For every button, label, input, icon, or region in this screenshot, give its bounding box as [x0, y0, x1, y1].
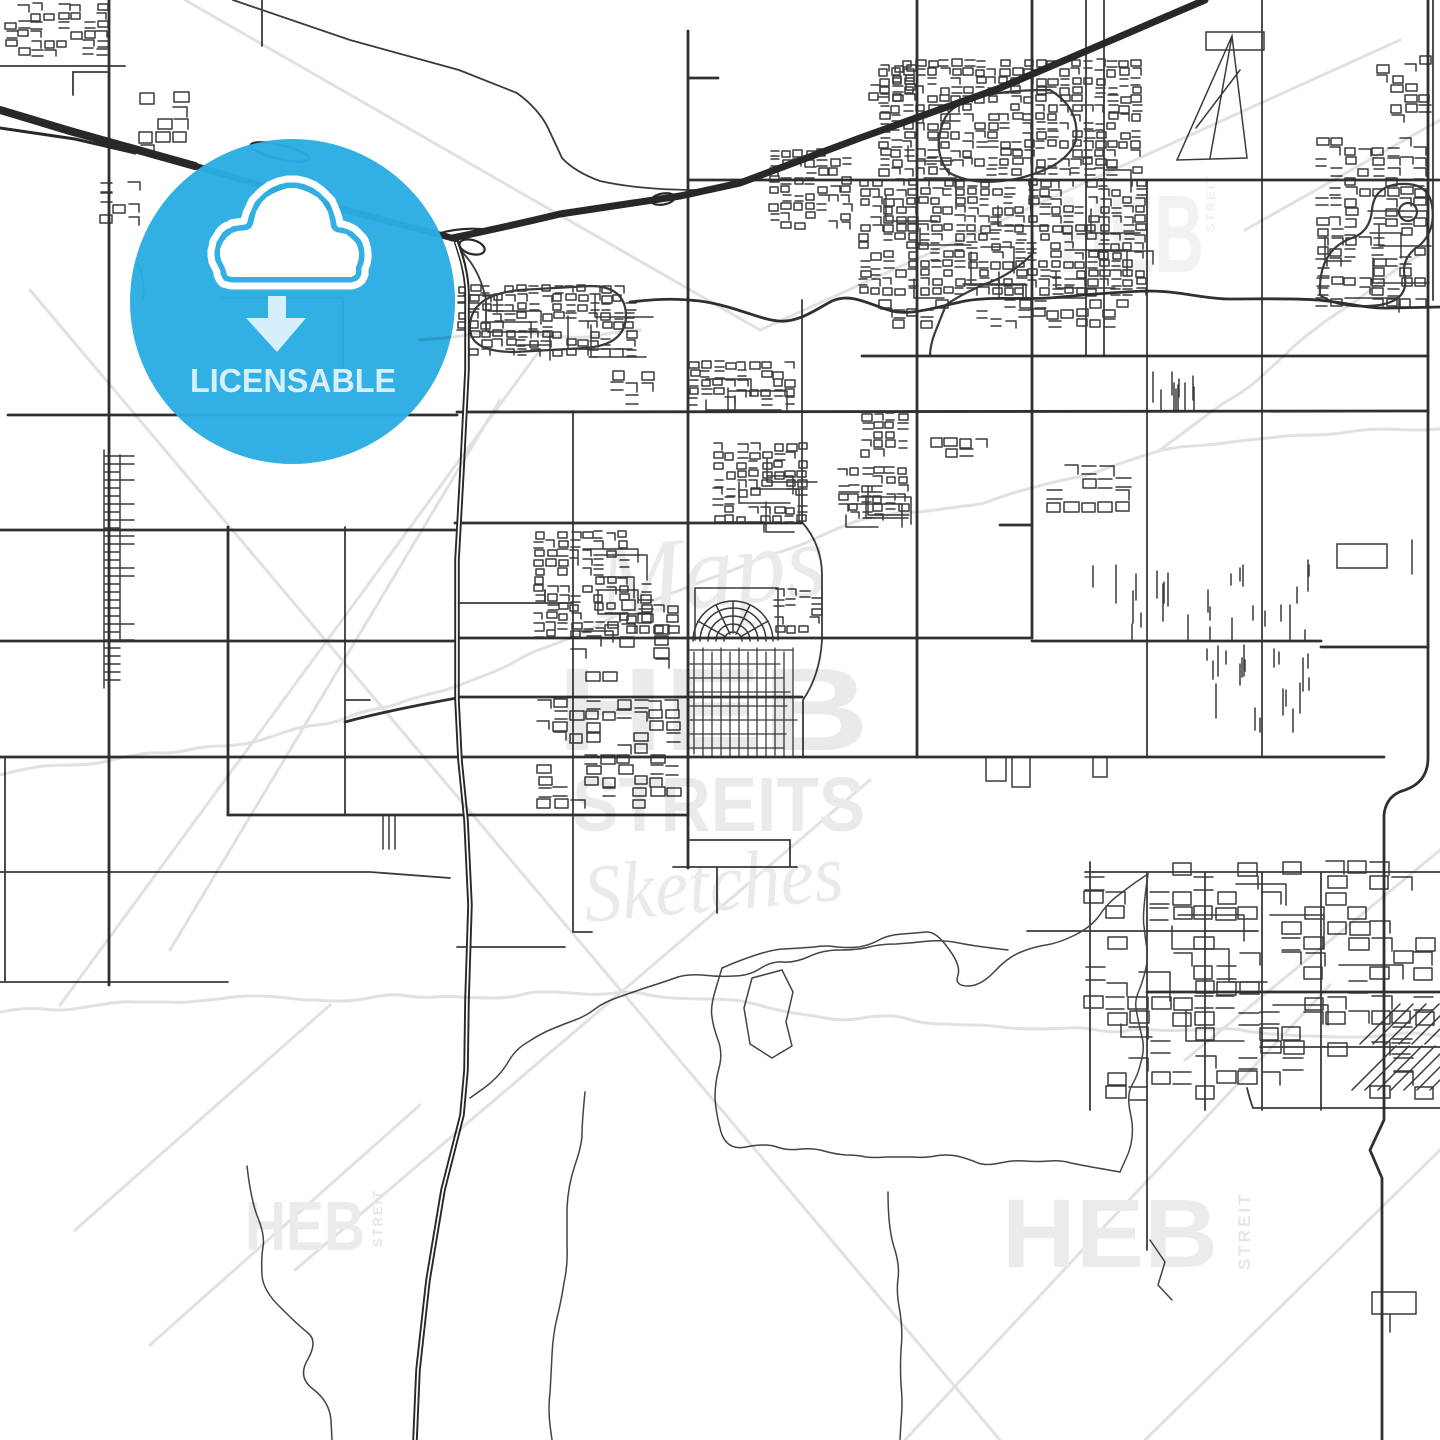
svg-text:STREIT: STREIT — [1235, 1192, 1254, 1270]
svg-text:HEB: HEB — [1059, 173, 1204, 296]
svg-text:STREIT: STREIT — [1203, 174, 1218, 232]
svg-text:HEB: HEB — [245, 1187, 365, 1265]
svg-text:HEB: HEB — [557, 644, 869, 776]
svg-text:STREIT: STREIT — [370, 1189, 385, 1247]
svg-text:Maps: Maps — [588, 500, 831, 641]
svg-text:LICENSABLE: LICENSABLE — [190, 362, 396, 399]
svg-text:HEB: HEB — [1002, 1179, 1218, 1288]
